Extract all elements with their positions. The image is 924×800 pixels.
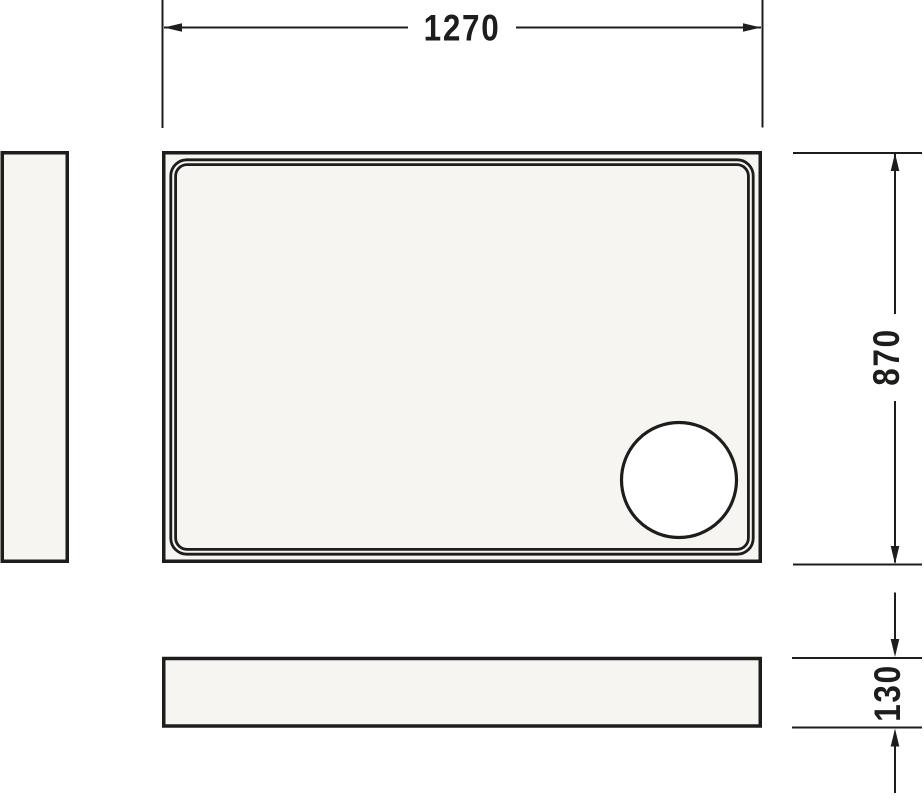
front-view-outline <box>164 659 761 727</box>
arrow-down-icon <box>891 546 900 564</box>
front-view-bottom <box>164 659 761 727</box>
side-view-left-outline <box>2 153 67 562</box>
top-view <box>164 153 761 562</box>
dimension-depth-label: 130 <box>868 664 909 722</box>
dimension-width-label: 1270 <box>424 8 501 49</box>
side-view-left <box>2 153 67 562</box>
dimension-height-label: 870 <box>867 328 908 386</box>
dimension-height: 870 <box>793 153 922 565</box>
arrow-up-icon <box>891 153 900 171</box>
arrow-right-icon <box>743 23 761 32</box>
dimension-width: 1270 <box>163 0 763 128</box>
shower-tray-technical-drawing: 1270 870 130 <box>0 0 924 800</box>
technical-drawing-page: 1270 870 130 <box>0 0 924 800</box>
drain-circle <box>622 423 737 538</box>
arrow-down-icon <box>891 639 900 657</box>
dimension-depth: 130 <box>792 593 922 794</box>
arrow-left-icon <box>164 23 182 32</box>
arrow-up-icon <box>891 729 900 747</box>
